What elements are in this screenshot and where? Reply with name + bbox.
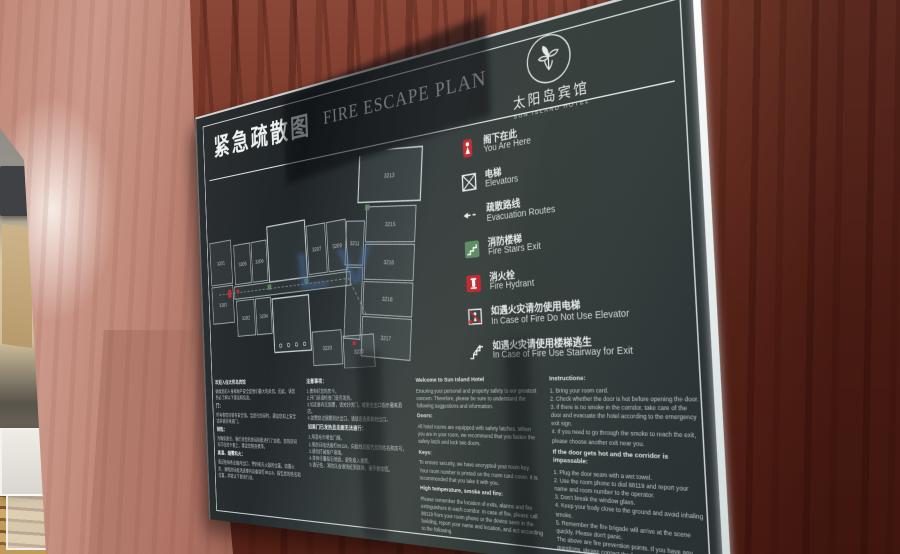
fire-hydrant-icon: [465, 273, 482, 294]
stairs-marker: [267, 284, 271, 290]
stairs-marker: [365, 204, 370, 210]
room-number: 3203: [219, 301, 228, 308]
fire-stairs-icon: [464, 239, 481, 260]
legend: 阁下在此You Are Here电梯Elevators疏散路线Evacuatio…: [459, 92, 701, 363]
column-heading: Instructions:: [549, 374, 700, 385]
column-heading: 欢迎入住太阳岛宾馆: [215, 380, 297, 388]
room-number: 3204: [259, 312, 268, 319]
room-number: 3213: [384, 171, 395, 179]
column-paragraph: 所有客房均装有安全锁。当您在房间时，建议您扣上安全锁并锁好两道门。: [216, 413, 299, 428]
photo-scene: 紧急疏散图 FIRE ESCAPE PLAN: [0, 0, 900, 554]
room-number: 3217: [380, 334, 391, 342]
column-paragraph: 请记住每条走廊内出口、警铃和灭火器的位置。如遇火灾，请用房间电话或楼内设备拨打8…: [218, 460, 301, 486]
info-column-en-3: Instructions:1. Bring your room card. 2.…: [549, 370, 710, 554]
you-are-here-marker: [228, 289, 232, 298]
you-are-here-icon: [459, 137, 476, 159]
column-paragraph: 为确保安全，我们对您的房间钥匙进行了加密。您的房间号印在房卡套上，建议您随身携带…: [217, 436, 300, 453]
info-column-zh-0: 欢迎入住太阳岛宾馆确保您的人身和财产安全是我们最大的关切。因此，请您务必了解以下…: [215, 376, 303, 522]
legend-item: 如遇火灾请勿使用电梯In Case of Fire Do Not Use Ele…: [467, 290, 700, 329]
room-number: 3205: [238, 260, 247, 267]
evacuation-route-icon: [462, 205, 479, 226]
column-heading: 门：: [216, 404, 299, 412]
room-number: 3218: [382, 295, 393, 302]
room-number: 3215: [385, 220, 396, 227]
column-paragraph: 1.用湿毛巾堵住门缝。 2.用房间电话拨打88119，向接线员报告您的姓名和房号…: [308, 434, 408, 475]
no-elevator-icon: [467, 307, 484, 327]
column-heading: 注意事项：: [306, 378, 405, 386]
hydrant-marker: [237, 289, 240, 293]
plan-room: [272, 295, 311, 353]
stairway-exit-icon: [468, 341, 485, 361]
column-paragraph: 1. Bring your room card. 2. Check whethe…: [550, 386, 704, 450]
elevator-icon: [461, 171, 478, 193]
info-columns: 欢迎入住太阳岛宾馆确保您的人身和财产安全是我们最大的关切。因此，请您务必了解以下…: [215, 370, 709, 554]
column-paragraph: 1.携带好您的房卡。 2.开门前请检查门是否发热。 3.如走廊内无烟雾，请关好房…: [307, 388, 407, 425]
room-number: 3220: [322, 344, 332, 351]
photo-watermark: LV: [293, 233, 389, 302]
hydrant-marker: [353, 341, 356, 345]
room-number: 3202: [242, 314, 251, 321]
background-wood-board: [2, 224, 32, 348]
lotus-flower-icon: [526, 29, 572, 88]
column-paragraph: 确保您的人身和财产安全是我们最大的关切。因此，请您务必了解以下建议和信息。: [215, 389, 298, 402]
